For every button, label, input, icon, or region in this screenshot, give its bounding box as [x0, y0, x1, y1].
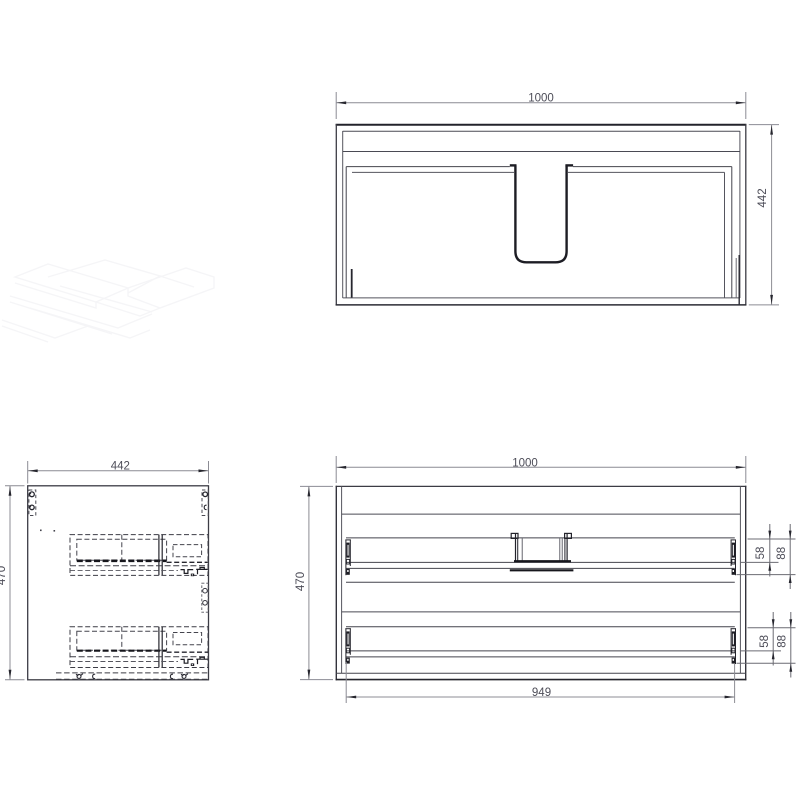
- svg-text:470: 470: [295, 572, 307, 591]
- svg-text:442: 442: [757, 188, 769, 207]
- svg-text:88: 88: [776, 547, 788, 560]
- svg-text:58: 58: [759, 635, 771, 648]
- svg-text:1000: 1000: [528, 93, 554, 105]
- svg-text:949: 949: [532, 687, 551, 699]
- svg-text:88: 88: [776, 635, 788, 648]
- svg-text:1000: 1000: [512, 457, 538, 469]
- svg-text:58: 58: [755, 547, 767, 560]
- svg-text:442: 442: [111, 461, 130, 473]
- svg-text:470: 470: [0, 566, 8, 585]
